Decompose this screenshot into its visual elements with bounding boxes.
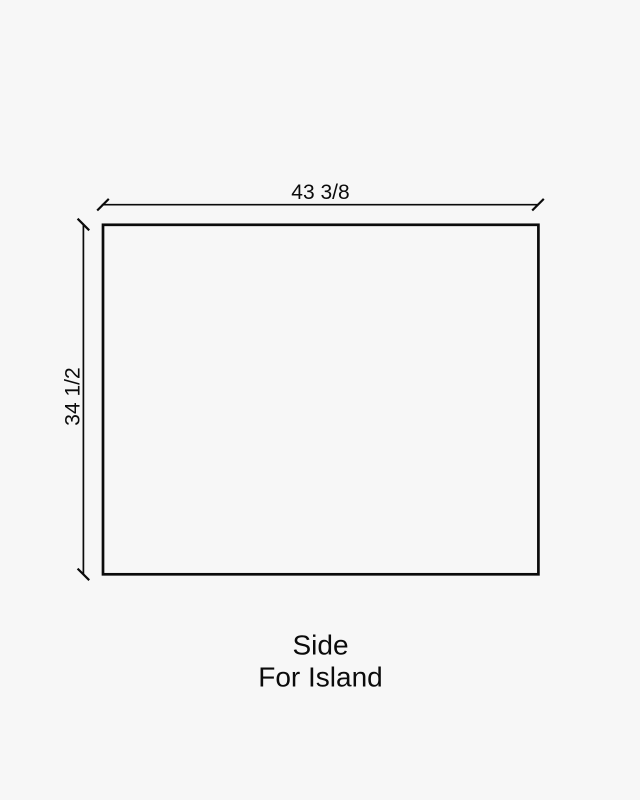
svg-text:For Island: For Island bbox=[258, 662, 383, 693]
svg-text:34 1/2: 34 1/2 bbox=[62, 367, 85, 425]
svg-text:Side: Side bbox=[292, 630, 348, 661]
svg-text:43 3/8: 43 3/8 bbox=[291, 181, 349, 204]
